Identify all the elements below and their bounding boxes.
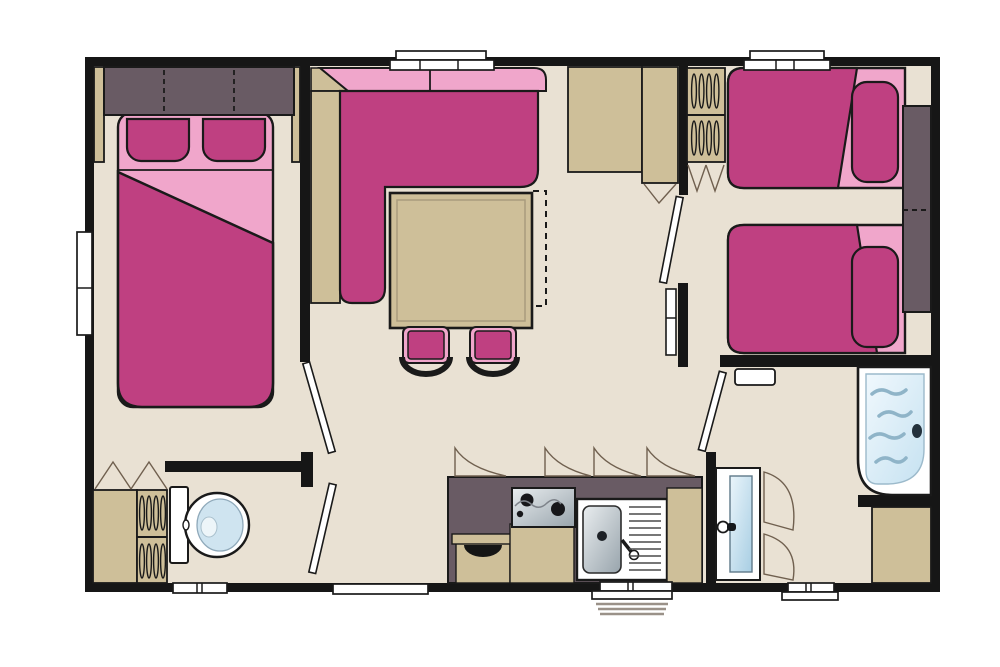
window-bottom-living <box>333 584 428 594</box>
window-bottom-wc <box>173 583 227 593</box>
wall-bedroom1-partition <box>300 66 310 362</box>
bathroom-cabinet <box>872 507 931 583</box>
sink-with-drainer <box>577 499 667 580</box>
shower-drain <box>912 424 922 438</box>
wall-bathroom-west <box>706 452 716 583</box>
pillow <box>852 247 898 347</box>
hob <box>512 488 575 527</box>
wall-wc-north <box>165 461 313 472</box>
wall-shower-stub <box>858 495 931 507</box>
window-bottom-kitchen <box>592 582 672 614</box>
louvered-wardrobe <box>93 490 137 583</box>
wall-wc-jamb <box>301 452 313 487</box>
floor-plan-drawing <box>0 0 1000 667</box>
pillow <box>203 119 265 161</box>
floor-plan-canvas <box>0 0 1000 667</box>
chair-cushion <box>475 331 511 359</box>
kitchen-cabinet <box>510 524 574 583</box>
cabinet-lip <box>452 534 512 544</box>
flush-button <box>183 520 189 530</box>
pillow <box>852 82 898 182</box>
sofa-base <box>311 91 340 303</box>
tall-cabinet <box>642 67 678 183</box>
chair-cushion <box>408 331 444 359</box>
window-top-bedroom2 <box>744 51 830 70</box>
burner <box>517 511 523 517</box>
burner <box>551 502 565 516</box>
door-panel-hallway <box>666 289 676 355</box>
tall-cabinet <box>568 67 642 172</box>
basin-faucet <box>718 522 729 533</box>
bedroom-double <box>94 67 300 407</box>
toilet-bowl-well <box>201 517 217 537</box>
pillow <box>127 119 189 161</box>
entrance-steps <box>596 604 668 614</box>
shower <box>858 367 931 495</box>
faucet-knob <box>630 551 639 560</box>
window-bottom-bathroom <box>782 583 838 600</box>
wall-hall-segment <box>678 283 688 367</box>
dining-table <box>390 193 532 328</box>
overhead-wardrobe <box>104 67 294 115</box>
kitchen-cabinet <box>667 488 702 583</box>
single-bed <box>728 225 905 353</box>
wall-shelf <box>735 369 775 385</box>
bedside-strip-left <box>94 67 104 162</box>
blanket <box>728 68 857 188</box>
wall-bedroom2-south <box>720 355 931 367</box>
sofa-backrest <box>320 68 546 91</box>
sink-drain <box>597 531 607 541</box>
single-bed <box>728 68 905 188</box>
window-left-bedroom1 <box>77 232 92 335</box>
faucet-spout <box>727 523 736 531</box>
window-top-living <box>390 51 494 70</box>
